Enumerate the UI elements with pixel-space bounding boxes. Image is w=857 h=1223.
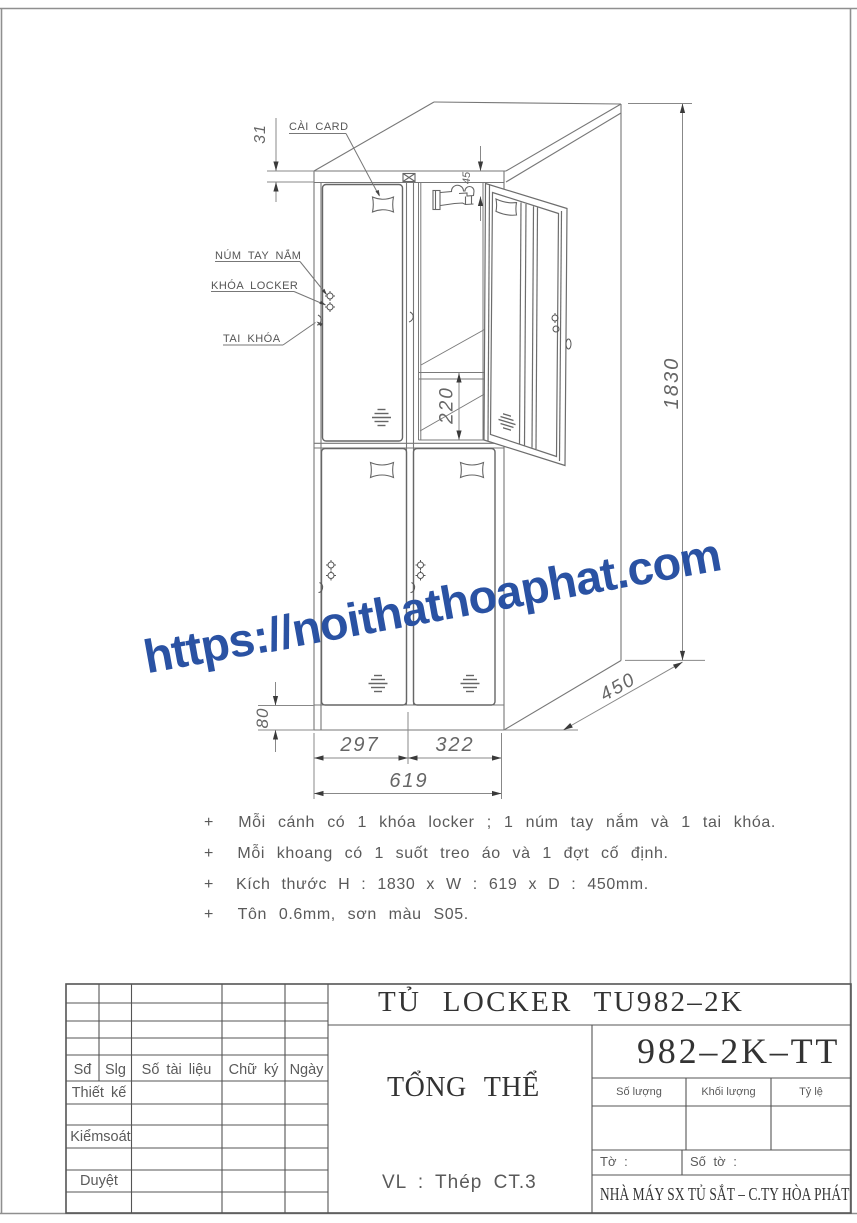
svg-text:45: 45 <box>461 171 473 184</box>
svg-text:TAI KHÓA: TAI KHÓA <box>223 332 281 345</box>
svg-text:31: 31 <box>252 124 269 144</box>
svg-text:450: 450 <box>597 669 640 706</box>
svg-text:322: 322 <box>435 734 474 756</box>
svg-text:1830: 1830 <box>661 357 683 410</box>
svg-text:619: 619 <box>389 770 428 792</box>
svg-text:80: 80 <box>253 708 272 729</box>
svg-text:KHÓA LOCKER: KHÓA LOCKER <box>211 279 298 292</box>
svg-text:297: 297 <box>339 734 379 756</box>
svg-text:CÀI CARD: CÀI CARD <box>289 120 349 133</box>
svg-text:NÚM TAY NẮM: NÚM TAY NẮM <box>215 249 301 262</box>
svg-text:220: 220 <box>437 386 458 425</box>
